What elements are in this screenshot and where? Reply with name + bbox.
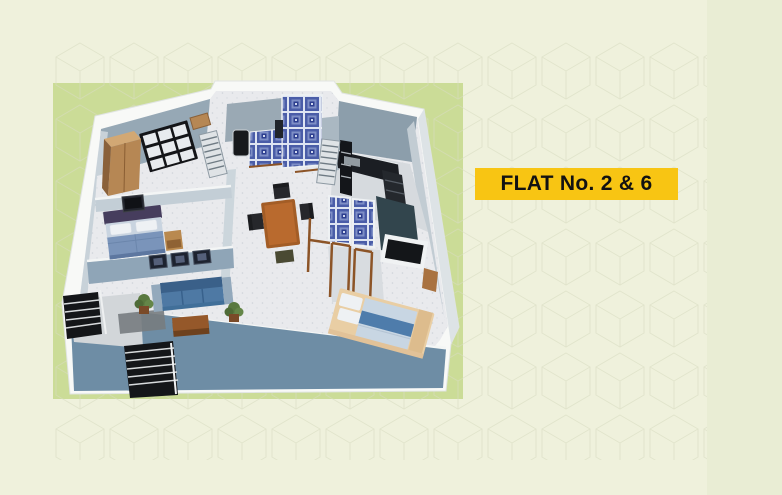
nightstand (164, 230, 183, 251)
double-bed (103, 205, 166, 260)
stair-flight-bottom (124, 341, 178, 398)
wardrobe (102, 131, 141, 196)
stool (275, 249, 294, 263)
page-background: FLAT No. 2 & 6 (0, 0, 782, 495)
dark-cabinet (340, 140, 352, 196)
flat-number-badge: FLAT No. 2 & 6 (475, 168, 678, 200)
stair-flight-left (63, 292, 102, 339)
right-column-panel (707, 0, 782, 495)
flat-number-label: FLAT No. 2 & 6 (501, 172, 653, 195)
tv-frame (122, 195, 144, 212)
floorplan-3d (0, 0, 782, 495)
geyser (233, 130, 249, 156)
coffee-table (172, 315, 210, 337)
side-shelf (422, 268, 438, 292)
